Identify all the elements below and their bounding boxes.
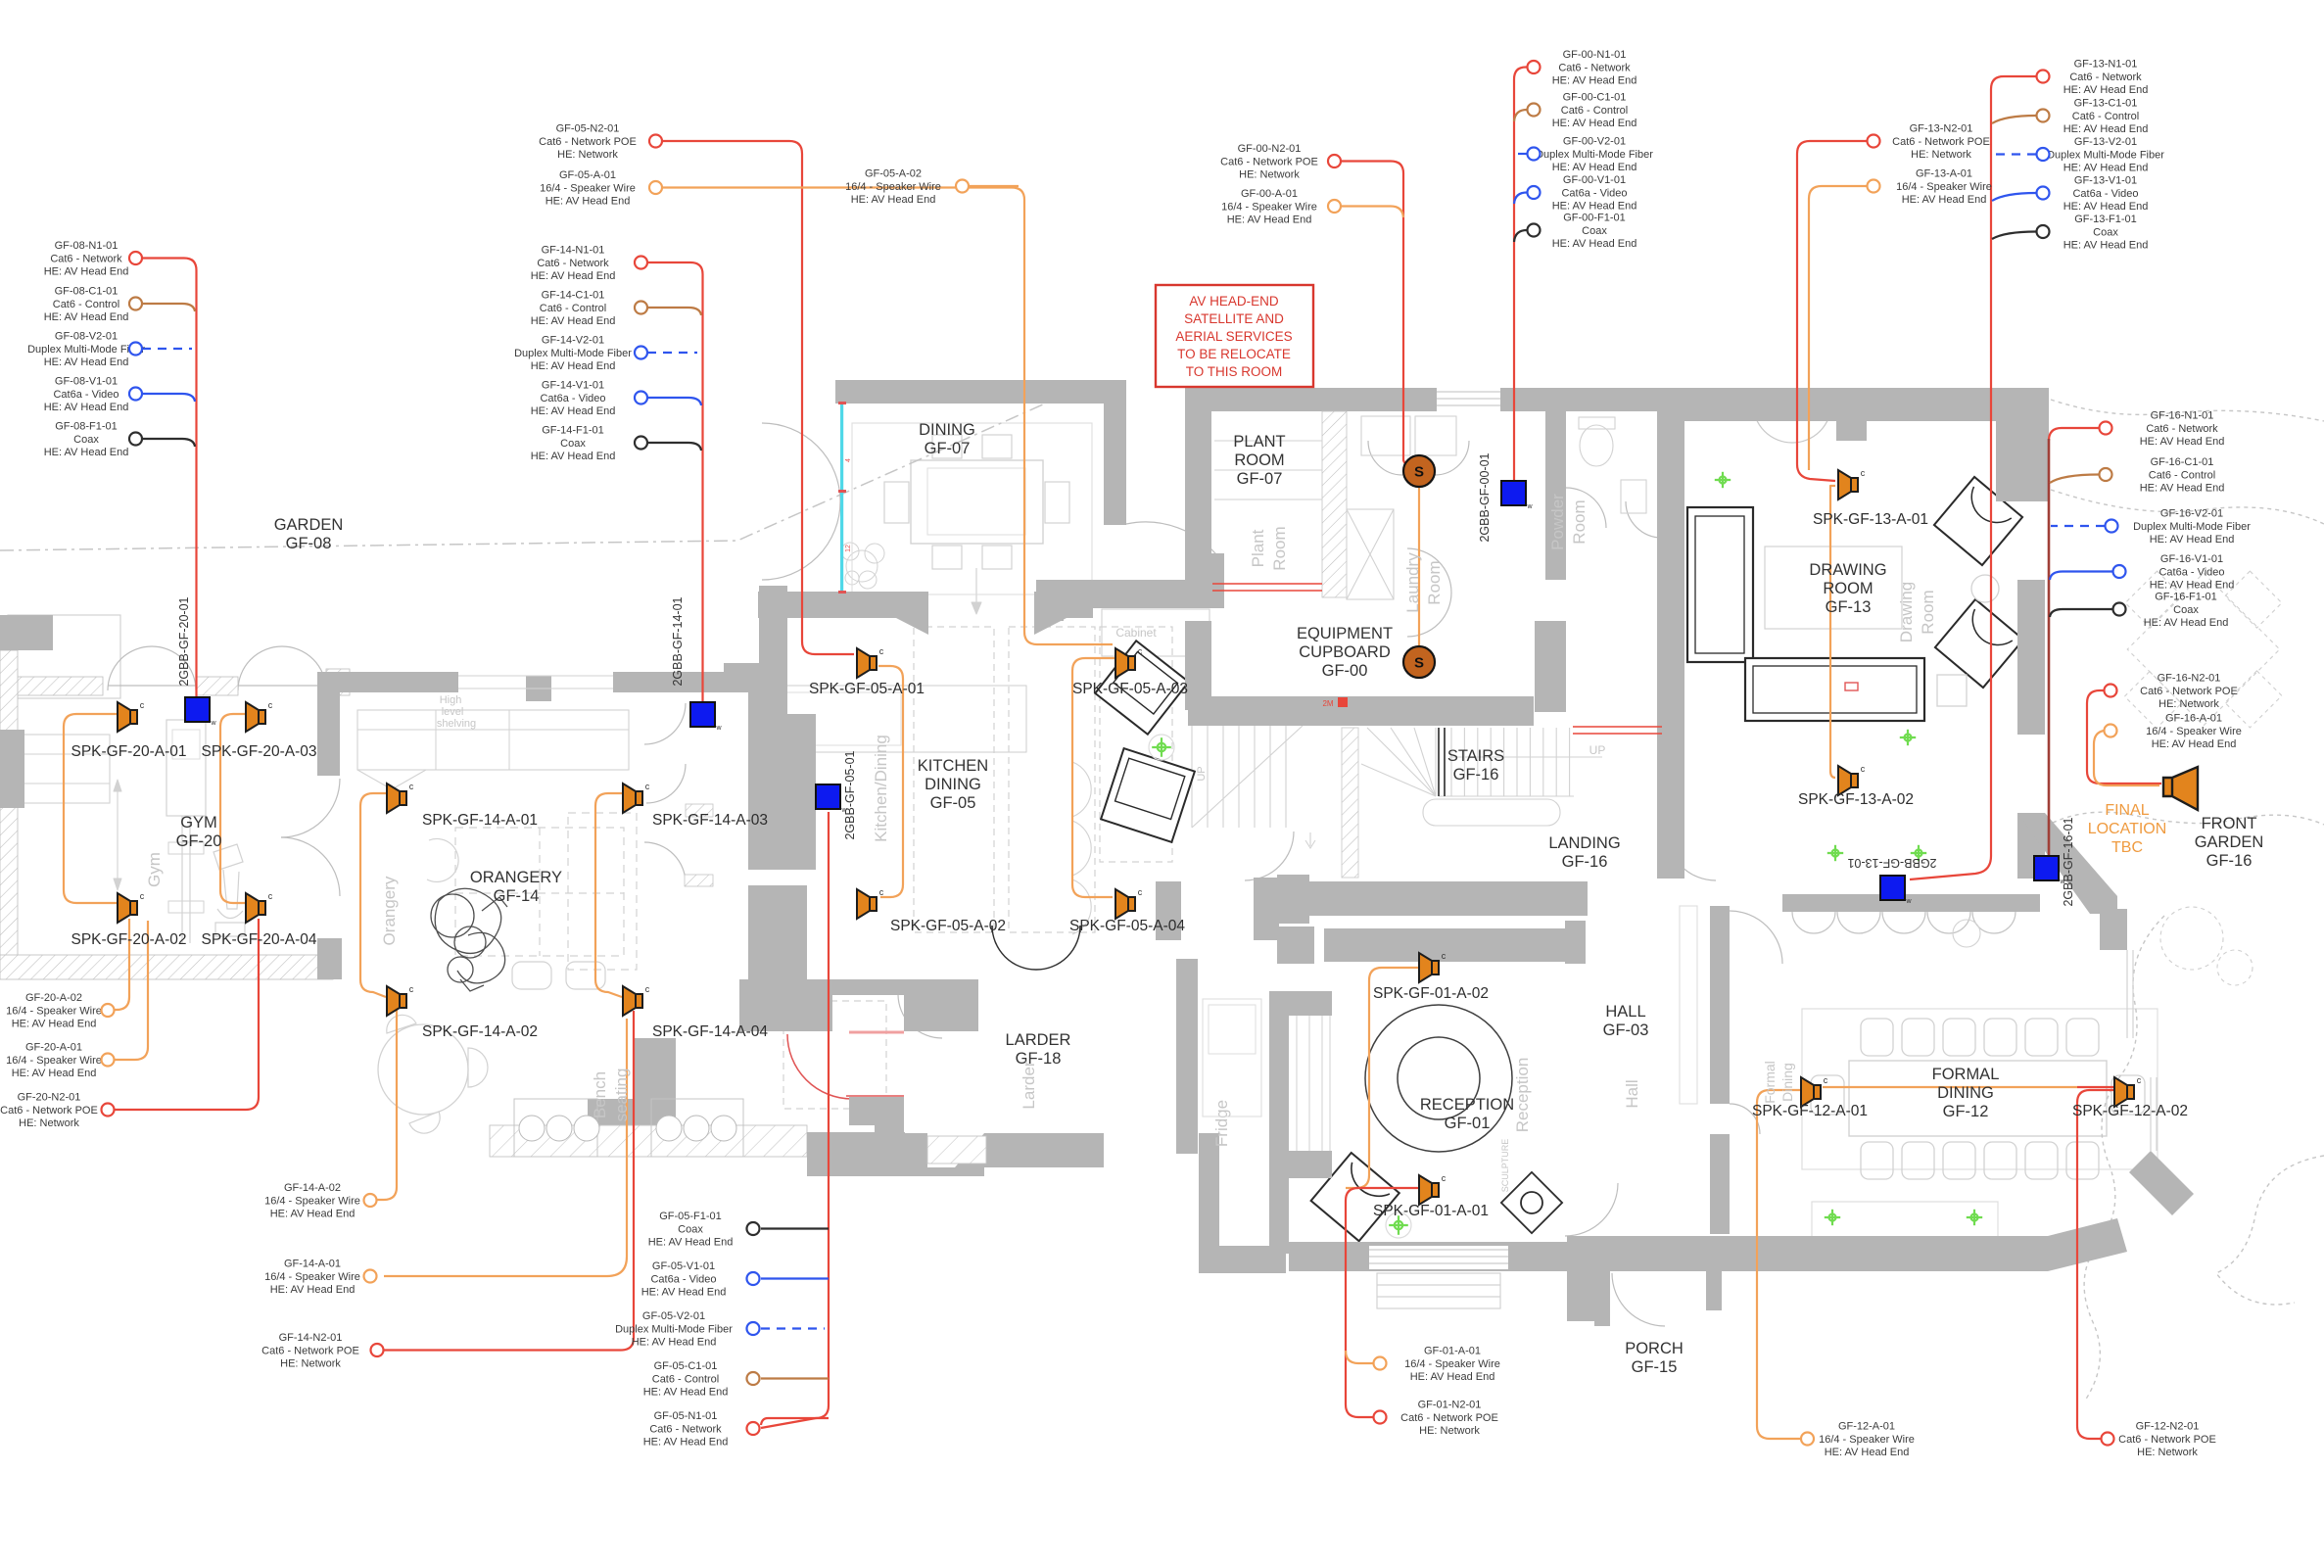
svg-text:Cat6 - Network: Cat6 - Network	[1558, 62, 1631, 73]
svg-text:HE: Network: HE: Network	[1239, 169, 1300, 181]
svg-text:GF-05-A-01: GF-05-A-01	[559, 169, 616, 181]
svg-text:SPK-GF-20-A-04: SPK-GF-20-A-04	[201, 931, 316, 948]
svg-text:HE: AV Head End: HE: AV Head End	[12, 1019, 97, 1030]
svg-text:GF-08-N1-01: GF-08-N1-01	[55, 240, 119, 252]
svg-text:GF-00-F1-01: GF-00-F1-01	[1563, 212, 1626, 223]
svg-text:GF-14-N1-01: GF-14-N1-01	[542, 244, 605, 256]
svg-text:UP: UP	[1196, 766, 1208, 781]
svg-text:SPK-GF-20-A-03: SPK-GF-20-A-03	[201, 743, 316, 760]
svg-text:HE: AV Head End: HE: AV Head End	[1552, 118, 1637, 129]
svg-text:SPK-GF-13-A-01: SPK-GF-13-A-01	[1813, 511, 1928, 528]
svg-text:GF-07: GF-07	[925, 440, 971, 457]
svg-text:HE: AV Head End: HE: AV Head End	[1227, 214, 1312, 226]
svg-text:16/4 - Speaker Wire: 16/4 - Speaker Wire	[264, 1271, 360, 1283]
svg-text:GF-12: GF-12	[1943, 1103, 1989, 1120]
svg-text:Cat6 - Network POE: Cat6 - Network POE	[1892, 136, 1990, 148]
svg-text:GF-16-N1-01: GF-16-N1-01	[2151, 409, 2214, 421]
svg-text:Fridge: Fridge	[1212, 1100, 1231, 1147]
svg-text:HE: AV Head End: HE: AV Head End	[2152, 738, 2237, 750]
svg-text:Reception: Reception	[1513, 1058, 1532, 1133]
svg-text:Room: Room	[1919, 590, 1937, 634]
svg-text:EQUIPMENT: EQUIPMENT	[1297, 625, 1393, 642]
svg-text:12: 12	[845, 545, 852, 552]
svg-text:GF-00-A-01: GF-00-A-01	[1241, 188, 1298, 200]
svg-text:Dining: Dining	[1779, 1063, 1795, 1102]
svg-text:GF-00-V1-01: GF-00-V1-01	[1563, 174, 1626, 186]
svg-text:Hall: Hall	[1623, 1079, 1641, 1108]
svg-text:Duplex Multi-Mode Fiber: Duplex Multi-Mode Fiber	[2047, 149, 2164, 161]
svg-text:GF-12-A-01: GF-12-A-01	[1838, 1420, 1895, 1432]
svg-text:PORCH: PORCH	[1625, 1340, 1684, 1357]
svg-text:2GBB-GF-14-01: 2GBB-GF-14-01	[671, 596, 685, 686]
svg-text:GF-14-N2-01: GF-14-N2-01	[279, 1332, 343, 1344]
svg-text:Cat6 - Control: Cat6 - Control	[652, 1373, 719, 1385]
svg-text:GF-13-V1-01: GF-13-V1-01	[2074, 174, 2137, 186]
svg-text:HE: AV Head End: HE: AV Head End	[632, 1337, 717, 1349]
svg-text:GF-20: GF-20	[176, 832, 222, 850]
svg-text:GF-08-V2-01: GF-08-V2-01	[55, 330, 118, 342]
svg-text:HE: AV Head End: HE: AV Head End	[1825, 1447, 1910, 1458]
svg-text:GF-05-F1-01: GF-05-F1-01	[659, 1211, 722, 1222]
svg-text:Cat6 - Control: Cat6 - Control	[2072, 111, 2139, 122]
svg-text:GF-16-C1-01: GF-16-C1-01	[2151, 456, 2214, 468]
svg-text:HE: AV Head End: HE: AV Head End	[2144, 617, 2229, 629]
svg-text:Cat6 - Network: Cat6 - Network	[50, 253, 122, 264]
svg-text:ORANGERY: ORANGERY	[470, 869, 562, 886]
svg-text:c: c	[2137, 1075, 2142, 1085]
svg-text:KITCHEN: KITCHEN	[918, 757, 988, 775]
svg-text:SATELLITE AND: SATELLITE AND	[1184, 311, 1284, 326]
svg-text:c: c	[1442, 1173, 1447, 1183]
svg-text:Cat6a - Video: Cat6a - Video	[53, 389, 119, 401]
svg-text:GF-05-N2-01: GF-05-N2-01	[556, 122, 620, 134]
svg-text:GF-03: GF-03	[1603, 1022, 1649, 1039]
svg-text:GF-01: GF-01	[1445, 1115, 1491, 1132]
svg-text:GF-01-N2-01: GF-01-N2-01	[1418, 1399, 1482, 1410]
svg-text:GF-16: GF-16	[2206, 852, 2253, 870]
svg-text:SPK-GF-05-A-01: SPK-GF-05-A-01	[809, 681, 925, 697]
svg-text:HE: AV Head End: HE: AV Head End	[2063, 201, 2149, 213]
svg-text:HE: AV Head End: HE: AV Head End	[1902, 194, 1987, 206]
svg-text:c: c	[1138, 646, 1143, 656]
svg-text:GF-13-C1-01: GF-13-C1-01	[2074, 97, 2138, 109]
svg-text:SPK-GF-20-A-01: SPK-GF-20-A-01	[71, 743, 186, 760]
svg-text:Cat6 - Network POE: Cat6 - Network POE	[0, 1105, 98, 1117]
svg-text:HE: AV Head End: HE: AV Head End	[2140, 483, 2225, 495]
svg-text:Duplex Multi-Mode Fiber: Duplex Multi-Mode Fiber	[514, 348, 632, 359]
svg-text:GF-20-N2-01: GF-20-N2-01	[18, 1091, 81, 1103]
svg-text:GF-13-N2-01: GF-13-N2-01	[1910, 122, 1973, 134]
svg-text:HE: AV Head End: HE: AV Head End	[2063, 163, 2149, 174]
svg-text:GF-05-C1-01: GF-05-C1-01	[654, 1360, 718, 1372]
svg-text:2GBB-GF-00-01: 2GBB-GF-00-01	[1478, 452, 1492, 542]
svg-text:16/4 - Speaker Wire: 16/4 - Speaker Wire	[6, 1055, 102, 1067]
svg-text:GF-05-V1-01: GF-05-V1-01	[652, 1260, 715, 1272]
svg-text:GF-16-V1-01: GF-16-V1-01	[2160, 553, 2223, 565]
svg-text:Room: Room	[1570, 499, 1589, 544]
svg-text:HE: AV Head End: HE: AV Head End	[2140, 436, 2225, 448]
svg-text:GARDEN: GARDEN	[2195, 833, 2264, 851]
svg-text:Duplex Multi-Mode Fiber: Duplex Multi-Mode Fiber	[1536, 149, 1653, 161]
svg-text:HE: Network: HE: Network	[19, 1117, 79, 1129]
svg-text:Kitchen/Dining: Kitchen/Dining	[872, 735, 890, 842]
svg-text:16/4 - Speaker Wire: 16/4 - Speaker Wire	[1221, 201, 1317, 213]
svg-text:Coax: Coax	[678, 1223, 703, 1235]
svg-text:GF-14-V2-01: GF-14-V2-01	[542, 334, 604, 346]
svg-text:Duplex Multi-Mode Fiber: Duplex Multi-Mode Fiber	[2133, 521, 2251, 533]
svg-text:GF-00-V2-01: GF-00-V2-01	[1563, 135, 1626, 147]
svg-text:16/4 - Speaker Wire: 16/4 - Speaker Wire	[2146, 726, 2242, 737]
svg-text:HE: AV Head End: HE: AV Head End	[531, 405, 616, 417]
svg-text:HE: Network: HE: Network	[2137, 1447, 2198, 1458]
svg-text:AV HEAD-END: AV HEAD-END	[1189, 294, 1279, 309]
svg-text:GF-20-A-02: GF-20-A-02	[25, 992, 82, 1004]
svg-text:HE: AV Head End: HE: AV Head End	[1410, 1371, 1495, 1383]
svg-text:Cat6 - Network POE: Cat6 - Network POE	[2118, 1434, 2216, 1446]
svg-text:FINAL: FINAL	[2105, 802, 2149, 819]
svg-text:16/4 - Speaker Wire: 16/4 - Speaker Wire	[845, 181, 941, 193]
svg-text:HE: AV Head End: HE: AV Head End	[1552, 201, 1637, 213]
svg-text:HALL: HALL	[1605, 1003, 1645, 1021]
svg-text:GF-13-A-01: GF-13-A-01	[1916, 167, 1972, 179]
svg-text:GF-05-N1-01: GF-05-N1-01	[654, 1410, 718, 1422]
svg-text:c: c	[1138, 887, 1143, 897]
svg-text:Cat6 - Network POE: Cat6 - Network POE	[261, 1345, 359, 1356]
svg-text:HE: AV Head End: HE: AV Head End	[2063, 123, 2149, 135]
svg-text:HE: AV Head End: HE: AV Head End	[1552, 238, 1637, 250]
svg-text:Larder: Larder	[1020, 1061, 1038, 1109]
svg-text:SPK-GF-13-A-02: SPK-GF-13-A-02	[1798, 791, 1914, 808]
svg-text:HE: AV Head End: HE: AV Head End	[1552, 75, 1637, 87]
svg-text:GF-00-N2-01: GF-00-N2-01	[1238, 143, 1302, 155]
svg-text:DINING: DINING	[919, 421, 975, 439]
svg-text:AERIAL SERVICES: AERIAL SERVICES	[1175, 329, 1292, 344]
svg-text:Powder: Powder	[1548, 494, 1567, 550]
svg-text:GF-16-N2-01: GF-16-N2-01	[2158, 672, 2221, 684]
svg-text:DINING: DINING	[1937, 1084, 1994, 1102]
svg-text:Cat6 - Network POE: Cat6 - Network POE	[2140, 686, 2238, 697]
svg-text:Cat6 - Network: Cat6 - Network	[537, 258, 609, 269]
svg-text:PLANT: PLANT	[1233, 433, 1285, 451]
svg-text:Cat6a - Video: Cat6a - Video	[540, 393, 605, 404]
svg-text:TO THIS ROOM: TO THIS ROOM	[1186, 364, 1283, 379]
svg-text:c: c	[268, 700, 273, 710]
svg-text:HE: AV Head End: HE: AV Head End	[2063, 240, 2149, 252]
svg-text:4: 4	[845, 458, 852, 462]
svg-text:c: c	[1824, 1075, 1828, 1085]
svg-text:S: S	[1414, 464, 1424, 481]
svg-text:Laundry: Laundry	[1403, 552, 1422, 613]
svg-text:SPK-GF-12-A-01: SPK-GF-12-A-01	[1752, 1103, 1868, 1119]
svg-text:HE: AV Head End: HE: AV Head End	[851, 194, 936, 206]
svg-text:c: c	[879, 887, 884, 897]
svg-text:2M: 2M	[1322, 699, 1333, 708]
svg-text:w: w	[1526, 503, 1533, 510]
svg-text:c: c	[268, 891, 273, 901]
svg-text:Cat6 - Control: Cat6 - Control	[2149, 469, 2215, 481]
svg-text:High: High	[440, 694, 462, 706]
svg-text:DRAWING: DRAWING	[1809, 561, 1886, 579]
svg-text:SPK-GF-05-A-03: SPK-GF-05-A-03	[1072, 681, 1188, 697]
svg-text:UP: UP	[1589, 743, 1606, 757]
svg-text:shelving: shelving	[437, 718, 476, 730]
svg-text:c: c	[879, 646, 884, 656]
svg-text:SPK-GF-05-A-02: SPK-GF-05-A-02	[890, 918, 1006, 934]
svg-text:HE: AV Head End: HE: AV Head End	[545, 196, 631, 208]
svg-text:HE: AV Head End: HE: AV Head End	[2150, 580, 2235, 592]
svg-text:Cat6 - Network: Cat6 - Network	[649, 1423, 722, 1435]
svg-text:GF-13-F1-01: GF-13-F1-01	[2074, 214, 2137, 225]
svg-text:SPK-GF-14-A-01: SPK-GF-14-A-01	[422, 812, 538, 829]
svg-text:LARDER: LARDER	[1006, 1031, 1071, 1049]
svg-text:HE: AV Head End: HE: AV Head End	[44, 447, 129, 458]
svg-text:Plant: Plant	[1249, 529, 1267, 567]
svg-text:GF-08-C1-01: GF-08-C1-01	[55, 285, 119, 297]
svg-text:16/4 - Speaker Wire: 16/4 - Speaker Wire	[1819, 1434, 1915, 1446]
svg-text:Cat6 - Control: Cat6 - Control	[1561, 105, 1628, 117]
svg-text:Cat6 - Control: Cat6 - Control	[540, 303, 606, 314]
svg-text:16/4 - Speaker Wire: 16/4 - Speaker Wire	[6, 1005, 102, 1017]
svg-text:ROOM: ROOM	[1823, 580, 1873, 597]
svg-text:FRONT: FRONT	[2202, 815, 2257, 832]
svg-text:w: w	[210, 720, 216, 727]
svg-text:SPK-GF-01-A-01: SPK-GF-01-A-01	[1373, 1203, 1489, 1219]
svg-text:GARDEN: GARDEN	[274, 516, 344, 534]
svg-text:GF-00: GF-00	[1322, 662, 1368, 680]
svg-text:HE: AV Head End: HE: AV Head End	[1552, 162, 1637, 173]
svg-text:SCULPTURE: SCULPTURE	[1500, 1139, 1510, 1193]
svg-text:Coax: Coax	[1582, 225, 1607, 237]
svg-text:GF-14-A-02: GF-14-A-02	[284, 1182, 341, 1194]
svg-text:Coax: Coax	[2173, 604, 2199, 616]
svg-text:2GBB-GF-13-01: 2GBB-GF-13-01	[1847, 856, 1936, 870]
svg-text:DINING: DINING	[925, 776, 981, 793]
svg-text:HE: Network: HE: Network	[280, 1358, 341, 1370]
svg-text:GF-14-V1-01: GF-14-V1-01	[542, 379, 604, 391]
svg-text:w: w	[715, 725, 722, 732]
svg-text:GF-00-C1-01: GF-00-C1-01	[1563, 91, 1627, 103]
svg-text:TO BE RELOCATE: TO BE RELOCATE	[1177, 347, 1291, 361]
svg-text:GF-20-A-01: GF-20-A-01	[25, 1041, 82, 1053]
svg-text:HE: AV Head End: HE: AV Head End	[643, 1437, 729, 1449]
svg-text:GF-13-N1-01: GF-13-N1-01	[2074, 58, 2138, 70]
svg-text:GF-14: GF-14	[494, 887, 540, 905]
svg-text:HE: Network: HE: Network	[2158, 698, 2219, 710]
svg-text:Drawing: Drawing	[1897, 582, 1916, 642]
svg-text:CUPBOARD: CUPBOARD	[1299, 643, 1391, 661]
svg-text:GF-08-V1-01: GF-08-V1-01	[55, 375, 118, 387]
svg-text:Coax: Coax	[560, 438, 586, 450]
svg-text:16/4 - Speaker Wire: 16/4 - Speaker Wire	[264, 1195, 360, 1207]
svg-text:2GBB-GF-05-01: 2GBB-GF-05-01	[843, 750, 857, 839]
svg-text:GF-15: GF-15	[1632, 1358, 1678, 1376]
svg-text:HE: AV Head End: HE: AV Head End	[648, 1237, 734, 1249]
svg-text:Cabinet: Cabinet	[1115, 626, 1157, 640]
svg-text:HE: Network: HE: Network	[1911, 149, 1971, 161]
svg-text:GF-00-N1-01: GF-00-N1-01	[1563, 49, 1627, 61]
svg-text:HE: AV Head End: HE: AV Head End	[44, 356, 129, 368]
svg-text:HE: AV Head End: HE: AV Head End	[643, 1387, 729, 1399]
svg-text:2GBB-GF-16-01: 2GBB-GF-16-01	[2062, 817, 2075, 906]
svg-text:HE: AV Head End: HE: AV Head End	[44, 311, 129, 323]
svg-text:HE: AV Head End: HE: AV Head End	[2150, 534, 2235, 546]
svg-text:SPK-GF-14-A-02: SPK-GF-14-A-02	[422, 1023, 538, 1040]
svg-text:Duplex Multi-Mode Fiber: Duplex Multi-Mode Fiber	[27, 344, 145, 356]
svg-text:w: w	[1905, 898, 1912, 905]
svg-text:TBC: TBC	[2111, 839, 2143, 856]
svg-text:Cat6 - Network POE: Cat6 - Network POE	[539, 136, 637, 148]
svg-text:HE: AV Head End: HE: AV Head End	[641, 1287, 727, 1299]
svg-text:STAIRS: STAIRS	[1447, 747, 1504, 765]
svg-text:GF-16: GF-16	[1562, 853, 1608, 871]
svg-text:GF-05: GF-05	[930, 794, 976, 812]
svg-text:HE: AV Head End: HE: AV Head End	[531, 451, 616, 462]
svg-text:GF-08-F1-01: GF-08-F1-01	[55, 420, 118, 432]
svg-text:Cat6 - Network: Cat6 - Network	[2069, 71, 2142, 83]
svg-text:GF-08: GF-08	[286, 535, 332, 552]
svg-text:c: c	[1861, 468, 1866, 478]
svg-text:Cat6 - Control: Cat6 - Control	[53, 299, 119, 310]
svg-text:HE: AV Head End: HE: AV Head End	[44, 266, 129, 278]
svg-text:16/4 - Speaker Wire: 16/4 - Speaker Wire	[540, 182, 636, 194]
svg-text:HE: Network: HE: Network	[557, 149, 618, 161]
svg-text:Duplex Multi-Mode Fiber: Duplex Multi-Mode Fiber	[615, 1323, 733, 1335]
svg-text:HE: Network: HE: Network	[1419, 1425, 1480, 1437]
svg-text:Cat6a - Video: Cat6a - Video	[2072, 188, 2138, 200]
svg-text:GF-14-C1-01: GF-14-C1-01	[542, 289, 605, 301]
svg-text:GF-05-V2-01: GF-05-V2-01	[642, 1310, 705, 1322]
svg-text:Coax: Coax	[73, 434, 99, 446]
svg-text:Cat6 - Network: Cat6 - Network	[2146, 423, 2218, 435]
svg-text:GF-13-V2-01: GF-13-V2-01	[2074, 136, 2137, 148]
svg-text:seating: seating	[612, 1069, 631, 1122]
svg-text:SPK-GF-20-A-02: SPK-GF-20-A-02	[71, 931, 186, 948]
svg-text:Orangery: Orangery	[380, 876, 399, 945]
svg-text:c: c	[645, 782, 650, 791]
svg-text:GF-07: GF-07	[1237, 470, 1283, 488]
svg-text:HE: AV Head End: HE: AV Head End	[531, 360, 616, 372]
svg-text:FORMAL: FORMAL	[1932, 1066, 2000, 1083]
svg-text:SPK-GF-14-A-03: SPK-GF-14-A-03	[652, 812, 768, 829]
svg-text:Cat6 - Network POE: Cat6 - Network POE	[1220, 156, 1318, 167]
svg-text:SPK-GF-05-A-04: SPK-GF-05-A-04	[1069, 918, 1185, 934]
svg-text:c: c	[140, 700, 145, 710]
svg-text:2GBB-GF-20-01: 2GBB-GF-20-01	[177, 596, 191, 686]
svg-text:HE: AV Head End: HE: AV Head End	[2063, 84, 2149, 96]
svg-text:HE: AV Head End: HE: AV Head End	[270, 1284, 356, 1296]
svg-text:Room: Room	[1425, 560, 1444, 604]
svg-text:S: S	[1414, 655, 1424, 672]
svg-text:Formal: Formal	[1762, 1061, 1778, 1104]
svg-text:LANDING: LANDING	[1548, 834, 1620, 852]
svg-text:GF-16: GF-16	[1453, 766, 1499, 784]
svg-text:Cat6a - Video: Cat6a - Video	[650, 1273, 716, 1285]
svg-text:Room: Room	[1270, 526, 1289, 570]
svg-text:Cat6 - Network POE: Cat6 - Network POE	[1400, 1412, 1498, 1424]
svg-text:SPK-GF-14-A-04: SPK-GF-14-A-04	[652, 1023, 768, 1040]
svg-text:c: c	[1442, 951, 1447, 961]
svg-text:c: c	[140, 891, 145, 901]
svg-text:c: c	[409, 984, 414, 994]
svg-text:GF-13: GF-13	[1826, 598, 1872, 616]
svg-text:GF-14-A-01: GF-14-A-01	[284, 1258, 341, 1269]
svg-text:HE: AV Head End: HE: AV Head End	[44, 402, 129, 413]
svg-text:GF-16-A-01: GF-16-A-01	[2165, 712, 2222, 724]
svg-text:SPK-GF-12-A-02: SPK-GF-12-A-02	[2072, 1103, 2188, 1119]
svg-text:GF-16-V2-01: GF-16-V2-01	[2160, 507, 2223, 519]
svg-text:GF-16-F1-01: GF-16-F1-01	[2155, 591, 2217, 602]
svg-text:Coax: Coax	[2093, 226, 2118, 238]
svg-text:c: c	[1861, 764, 1866, 774]
svg-text:HE: AV Head End: HE: AV Head End	[531, 315, 616, 327]
svg-text:GYM: GYM	[180, 814, 217, 832]
svg-text:HE: AV Head End: HE: AV Head End	[531, 270, 616, 282]
svg-text:level: level	[442, 706, 464, 718]
svg-text:c: c	[409, 782, 414, 791]
svg-text:HE: AV Head End: HE: AV Head End	[270, 1209, 356, 1220]
svg-text:GF-14-F1-01: GF-14-F1-01	[542, 424, 604, 436]
svg-text:GF-12-N2-01: GF-12-N2-01	[2136, 1420, 2200, 1432]
svg-text:SPK-GF-01-A-02: SPK-GF-01-A-02	[1373, 985, 1489, 1002]
svg-text:HE: AV Head End: HE: AV Head End	[12, 1068, 97, 1079]
svg-text:LOCATION: LOCATION	[2088, 821, 2167, 837]
svg-text:c: c	[645, 984, 650, 994]
svg-text:16/4 - Speaker Wire: 16/4 - Speaker Wire	[1404, 1358, 1500, 1370]
svg-text:Cat6a - Video: Cat6a - Video	[1561, 187, 1627, 199]
svg-text:Bench: Bench	[591, 1071, 609, 1118]
svg-text:ROOM: ROOM	[1234, 451, 1284, 469]
svg-text:GF-05-A-02: GF-05-A-02	[865, 167, 922, 179]
svg-text:Gym: Gym	[145, 852, 164, 887]
svg-text:RECEPTION: RECEPTION	[1420, 1096, 1514, 1114]
svg-text:16/4 - Speaker Wire: 16/4 - Speaker Wire	[1896, 181, 1992, 193]
svg-text:GF-01-A-01: GF-01-A-01	[1424, 1345, 1481, 1356]
svg-text:Cat6a - Video: Cat6a - Video	[2158, 566, 2224, 578]
